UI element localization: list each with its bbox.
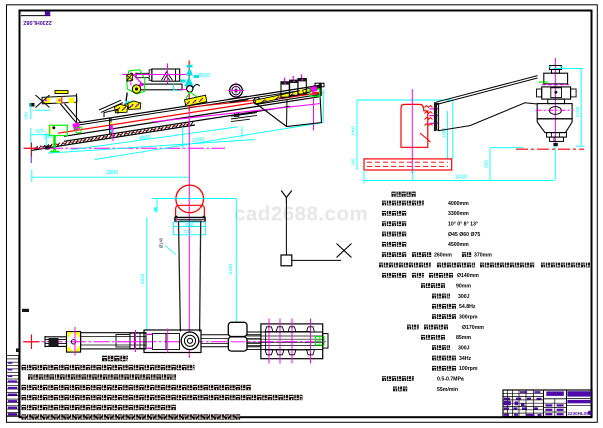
svg-text:300rpm: 300rpm [459,315,478,321]
svg-text:2200: 2200 [575,106,580,117]
svg-text:0.5-0.7MPa: 0.5-0.7MPa [437,377,464,383]
svg-text:1400: 1400 [441,127,446,138]
svg-text:100rpm: 100rpm [459,366,478,372]
svg-text:370mm: 370mm [474,253,492,259]
svg-text:Ø100: Ø100 [197,73,210,79]
svg-text:190: 190 [24,112,29,120]
svg-text:10° 0° 8° 13°: 10° 0° 8° 13° [448,222,478,228]
svg-text:Ø140mm: Ø140mm [457,273,479,279]
svg-text:300J: 300J [458,346,470,352]
svg-text:Ø45 Ø60 Ø75: Ø45 Ø60 Ø75 [448,232,480,238]
svg-text:Ø170mm: Ø170mm [462,325,484,331]
svg-text:34Hz: 34Hz [459,356,472,362]
svg-text:725: 725 [183,229,191,235]
svg-text:90mm: 90mm [456,284,471,290]
svg-text:2230HL08Z: 2230HL08Z [23,19,52,25]
svg-text:5430: 5430 [228,263,234,274]
svg-text:260mm: 260mm [434,253,452,259]
svg-text:Ø140: Ø140 [159,237,164,248]
svg-text:2800: 2800 [106,170,118,176]
svg-text:55m/min: 55m/min [437,387,458,393]
svg-text:1400: 1400 [351,125,356,136]
svg-text:245: 245 [351,158,356,166]
svg-text:4500mm: 4500mm [448,242,469,248]
svg-text:85mm: 85mm [456,335,471,341]
svg-text:650: 650 [185,222,193,228]
svg-text:3430: 3430 [455,175,467,181]
svg-text:cad2688.com: cad2688.com [234,203,368,226]
svg-text:300J: 300J [458,294,470,300]
svg-text:54.8Hz: 54.8Hz [459,304,476,310]
svg-text:2830: 2830 [140,273,146,284]
svg-text:4000mm: 4000mm [448,201,469,207]
svg-text:560: 560 [484,160,489,168]
svg-text:3300mm: 3300mm [448,211,469,217]
